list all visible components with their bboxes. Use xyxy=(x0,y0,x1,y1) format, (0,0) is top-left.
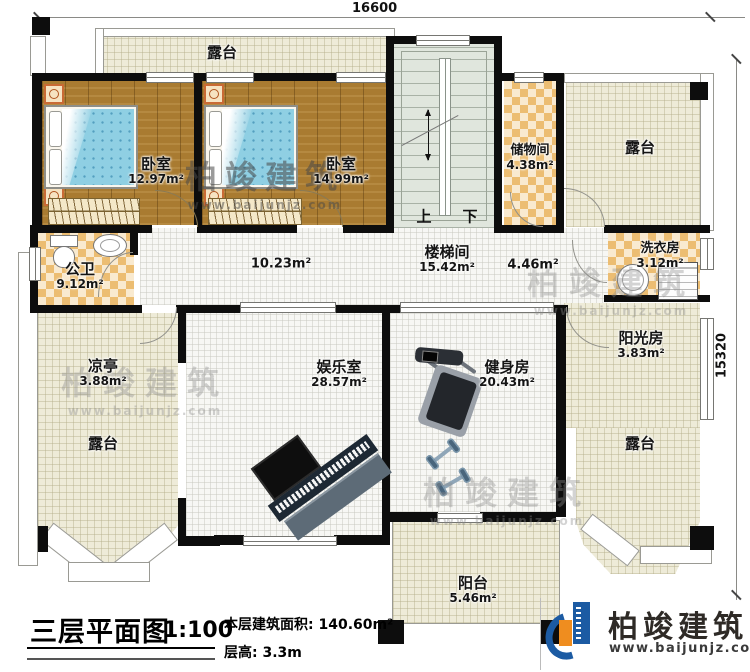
sink-icon xyxy=(93,234,127,257)
terrace-top-right-label: 露台 xyxy=(625,140,655,157)
top-dimension-line xyxy=(38,17,745,18)
logo-divider xyxy=(540,598,541,670)
terrace-railing xyxy=(564,73,708,83)
corner-pillar xyxy=(690,82,708,100)
gym-label: 健身房20.43m² xyxy=(479,359,535,389)
baijun-logo-icon xyxy=(546,600,602,666)
terrace-top-left-label: 露台 xyxy=(207,45,237,62)
bed-icon xyxy=(44,105,138,189)
closet-icon xyxy=(208,198,302,225)
bathroom-label: 公卫9.12m² xyxy=(56,261,103,291)
stairwell-label: 楼梯间15.42m² xyxy=(419,244,475,274)
nightstand-icon xyxy=(44,84,64,104)
logo-website: www.baijunjz.com xyxy=(609,641,750,656)
stair-rail xyxy=(439,58,451,216)
corner-pillar xyxy=(32,17,50,35)
page-title: 三层平面图 xyxy=(30,610,170,649)
room-terrace-top-left xyxy=(100,36,392,74)
nightstand-icon xyxy=(204,84,224,104)
stair-down-label: 下 xyxy=(462,206,477,227)
hallway-right-area-label: 4.46m² xyxy=(507,259,558,274)
hallway-left-area-label: 10.23m² xyxy=(251,258,311,273)
sunroom-label: 阳光房3.83m² xyxy=(617,330,664,360)
bedroom-left-label: 卧室12.97m² xyxy=(128,156,184,186)
bed-icon xyxy=(204,105,298,189)
floor-plan: 16600 15320 xyxy=(0,0,750,672)
pavilion-label: 凉亭3.88m² xyxy=(79,358,126,388)
stair-direction-arrow-icon xyxy=(428,110,429,160)
floor-area-label: 本层建筑面积: 140.60m² xyxy=(224,614,393,634)
laundry-label: 洗衣房3.12m² xyxy=(636,242,683,270)
logo-brand-name: 柏竣建筑 xyxy=(608,602,748,646)
stair-up-label: 上 xyxy=(416,206,431,227)
entertainment-label: 娱乐室28.57m² xyxy=(311,359,367,389)
terrace-right-label: 露台 xyxy=(625,436,655,453)
closet-icon xyxy=(48,198,140,225)
terrace-railing xyxy=(95,28,395,37)
storage-label: 储物间4.38m² xyxy=(506,144,553,172)
porch-column xyxy=(30,36,46,76)
floor-height-label: 层高: 3.3m xyxy=(224,642,302,662)
scale-label: 1:100 xyxy=(163,618,233,643)
room-balcony xyxy=(392,520,560,624)
bay-window-frame xyxy=(68,562,150,582)
corner-pillar xyxy=(690,526,714,550)
right-dimension-line xyxy=(736,60,737,600)
top-dimension-value: 16600 xyxy=(352,1,397,16)
bedroom-right-label: 卧室14.99m² xyxy=(313,156,369,186)
balcony-label: 阳台5.46m² xyxy=(449,575,496,605)
terrace-railing xyxy=(95,28,104,76)
title-underline xyxy=(27,647,215,660)
right-dimension-value: 15320 xyxy=(715,326,730,386)
terrace-left-label: 露台 xyxy=(88,436,118,453)
